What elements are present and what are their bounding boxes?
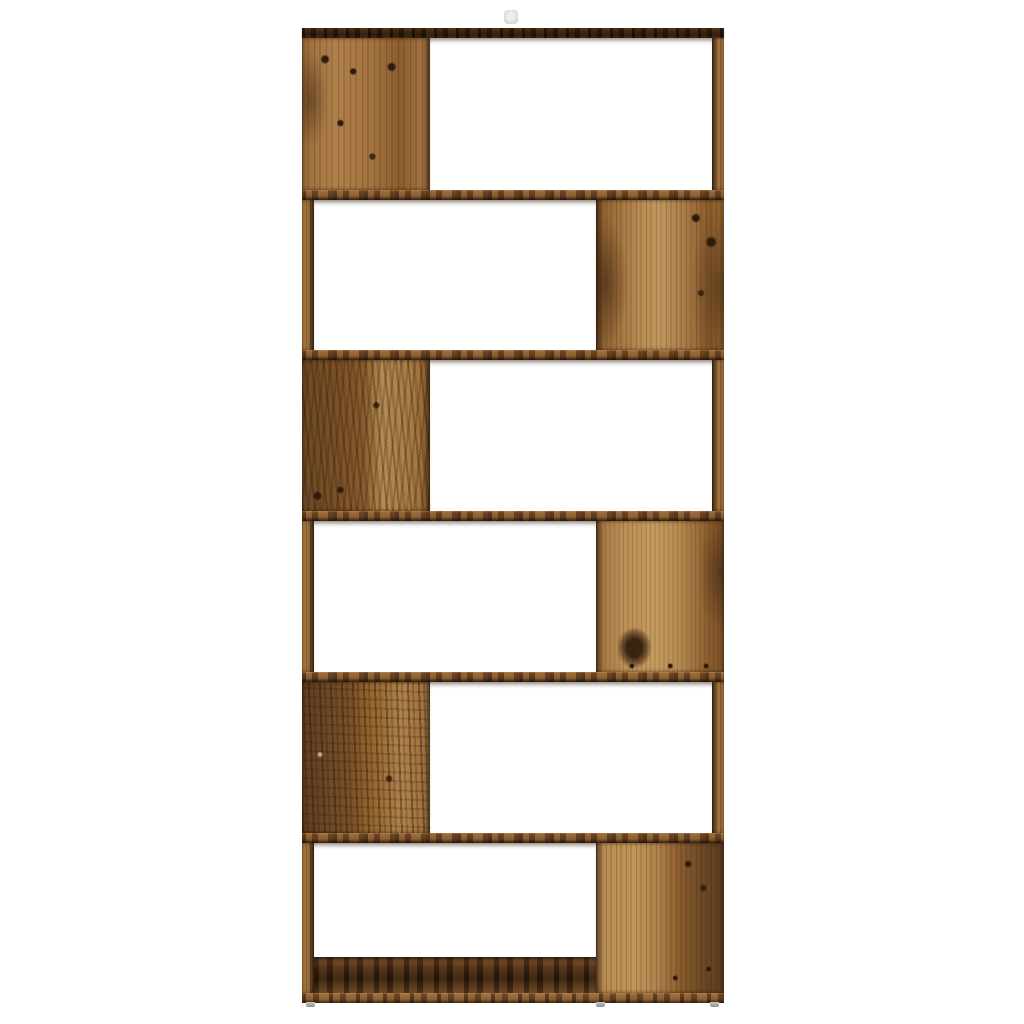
tier-1 [302, 38, 724, 190]
tier-3-opening [430, 360, 712, 511]
tier-3 [302, 360, 724, 511]
tier-4-opening [314, 521, 596, 672]
tier-1-opening [430, 38, 712, 190]
tier-3-divider-panel [302, 360, 430, 511]
foot-left [306, 1002, 315, 1007]
tier-1-divider-panel [302, 38, 430, 190]
tier-5-opening [430, 682, 712, 833]
shelf-4 [302, 672, 724, 682]
bookcase [302, 28, 724, 1003]
wall-mount-tab [504, 10, 518, 24]
shelf-5 [302, 833, 724, 843]
tier-2-side-wall [302, 200, 314, 350]
tier-4 [302, 521, 724, 672]
tier-4-side-wall [302, 521, 314, 672]
shelf-1 [302, 190, 724, 200]
tier-5 [302, 682, 724, 833]
tier-4-divider-panel [596, 521, 724, 672]
tier-6-side-wall [302, 843, 314, 993]
tier-6-plinth-recess [314, 957, 596, 993]
tier-5-divider-panel [302, 682, 430, 833]
product-photo-canvas [0, 0, 1024, 1024]
tier-1-side-wall [712, 38, 724, 190]
tier-2-opening [314, 200, 596, 350]
top-board [302, 28, 724, 38]
shelf-2 [302, 350, 724, 360]
bottom-board [302, 993, 724, 1003]
tier-5-side-wall [712, 682, 724, 833]
tier-6 [302, 843, 724, 993]
shelf-3 [302, 511, 724, 521]
foot-right [710, 1002, 719, 1007]
tier-2 [302, 200, 724, 350]
foot-middle [596, 1002, 605, 1007]
tier-2-divider-panel [596, 200, 724, 350]
tier-6-opening [314, 843, 596, 957]
tier-3-side-wall [712, 360, 724, 511]
tier-6-divider-panel [596, 843, 724, 993]
